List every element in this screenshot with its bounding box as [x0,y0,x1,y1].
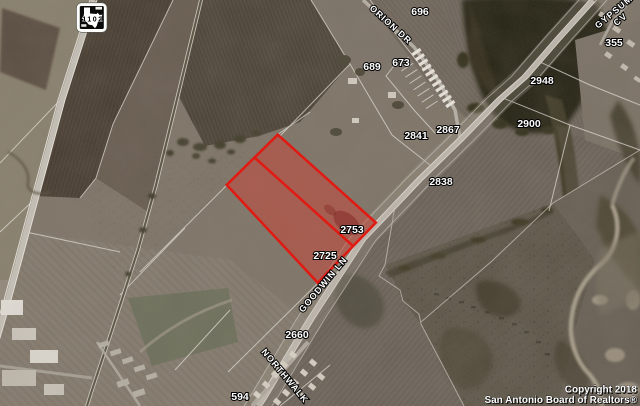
svg-text:Copyright 2018: Copyright 2018 [565,385,638,396]
svg-text:689: 689 [363,61,381,73]
svg-text:2948: 2948 [530,75,554,87]
svg-text:2660: 2660 [285,329,309,341]
svg-text:2867: 2867 [436,124,460,136]
svg-text:673: 673 [392,57,410,69]
svg-text:355: 355 [605,37,623,49]
svg-text:594: 594 [231,391,249,403]
svg-text:2900: 2900 [517,118,541,130]
svg-text:2725: 2725 [313,250,337,262]
svg-text:696: 696 [411,6,429,18]
svg-text:2841: 2841 [404,130,428,142]
svg-text:San Antonio Board of Realtors®: San Antonio Board of Realtors® [484,395,637,406]
svg-text:1102: 1102 [82,17,103,24]
svg-text:2838: 2838 [429,176,453,188]
svg-text:2753: 2753 [340,224,364,236]
